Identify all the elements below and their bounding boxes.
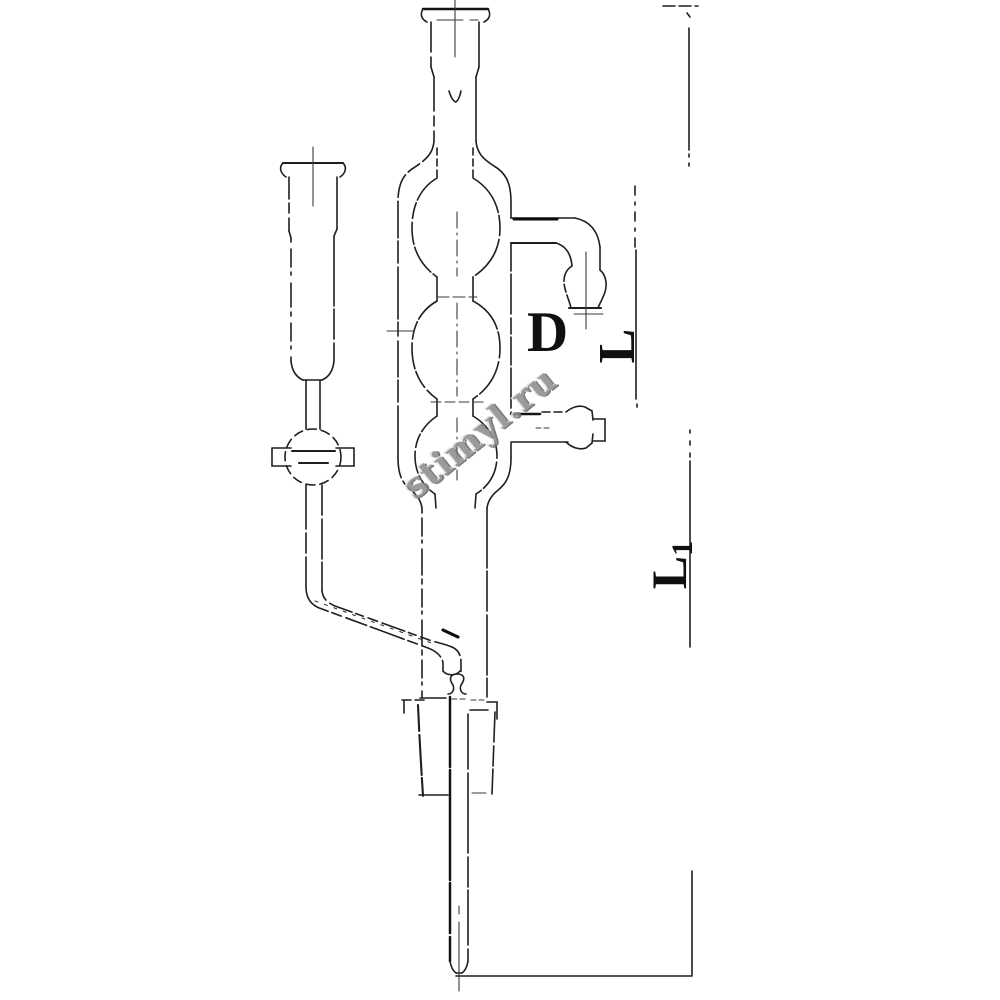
olive-top [566, 406, 592, 412]
addition-tube [281, 147, 346, 429]
ltube-lip-right [340, 163, 345, 177]
bulb1-right [473, 178, 500, 277]
stopcock-body [285, 429, 341, 485]
condenser-top-joint [421, 0, 489, 141]
neck-mark [449, 91, 461, 102]
joint-step-right [476, 67, 479, 77]
arm-inner-bend [556, 243, 572, 266]
ltube-bottom-right [322, 361, 334, 380]
ltube-step-right [334, 229, 337, 236]
arm-outer-bend [575, 218, 600, 247]
dimension-labels: D L L1 [527, 301, 699, 589]
jacket-dome-left [398, 141, 434, 202]
bulb-junction3-right [475, 494, 476, 508]
stopcock [272, 429, 354, 485]
ltube-step-left [289, 231, 291, 238]
delivery-tip-right [462, 961, 468, 973]
label-overall-length-subscript: 1 [666, 541, 699, 556]
bend-tube [306, 485, 461, 675]
delivery-tip-left [450, 961, 456, 973]
joint-rim-left-lip [421, 9, 427, 22]
delivery-tube [450, 697, 468, 991]
bulb1-left [412, 178, 437, 277]
joint-step-left [431, 67, 434, 77]
bulb2-left [412, 301, 437, 399]
joint-wall-left [418, 705, 423, 796]
bend-hook-right [452, 647, 461, 672]
dimension-lines [456, 6, 698, 976]
jacket-dome-right [476, 141, 511, 202]
olive-bottom [566, 442, 592, 449]
label-overall-length-base: L [641, 556, 697, 589]
ltube-lip-left [281, 163, 286, 177]
bulb2-right [473, 301, 500, 399]
bend-inner-wall [322, 591, 452, 647]
ltube-bottom-left [291, 361, 303, 380]
label-overall-length: L1 [641, 541, 699, 589]
joint-wall-right [492, 712, 495, 794]
joint-rim-right-lip [484, 9, 490, 22]
olive-right [592, 411, 593, 443]
glassware-diagram: D L L1 stimyl.ru stimyl.ru stimyl.ru [0, 0, 1000, 1000]
dim-top-dot [687, 13, 690, 17]
label-jacket-length: L [589, 329, 646, 364]
diagram-page: D L L1 stimyl.ru stimyl.ru stimyl.ru [0, 0, 1000, 1000]
jacket-bottom-right [487, 458, 511, 508]
label-diameter: D [527, 301, 568, 364]
bend-junction-accent [443, 630, 458, 637]
vent-bell [448, 674, 466, 694]
socket-right [598, 270, 606, 308]
bend-centerline [315, 601, 437, 645]
